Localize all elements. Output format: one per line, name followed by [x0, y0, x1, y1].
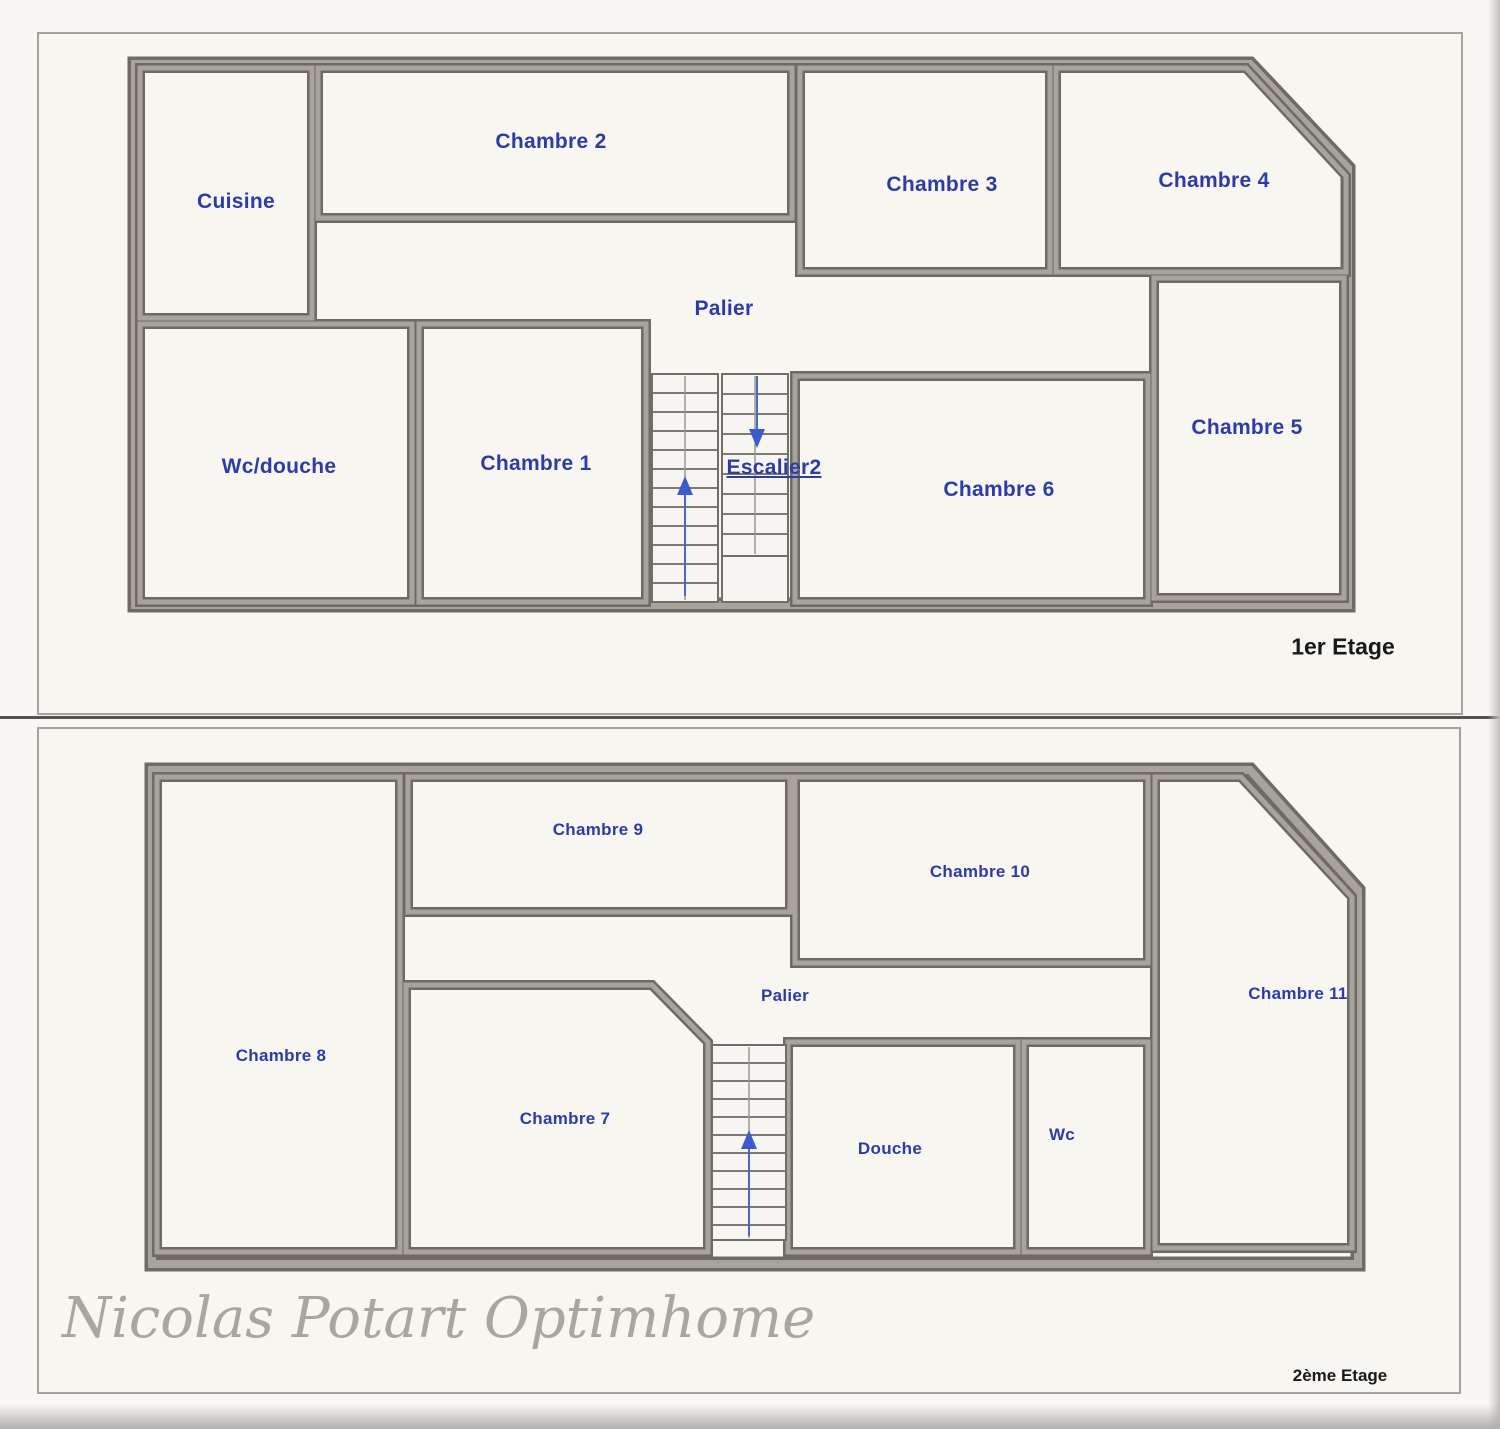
- room-label-chambre-11: Chambre 11: [1248, 984, 1347, 1004]
- scan-edge-right: [1488, 0, 1500, 1429]
- room-label-chambre-1: Chambre 1: [480, 452, 591, 476]
- room-label-chambre-2: Chambre 2: [495, 130, 606, 154]
- room-label-chambre-9: Chambre 9: [553, 820, 644, 840]
- scanned-floorplan-document: Cuisine Chambre 2 Chambre 3 Chambre 4 Pa…: [0, 0, 1500, 1429]
- room-label-douche: Douche: [858, 1139, 922, 1159]
- floor2-title: 2ème Etage: [1293, 1366, 1388, 1386]
- room-label-cuisine: Cuisine: [197, 190, 275, 214]
- room-label-wc-douche: Wc/douche: [222, 455, 337, 479]
- room-label-chambre-4: Chambre 4: [1158, 169, 1269, 193]
- floorplan-drawing: [0, 0, 1500, 1429]
- room-label-chambre-3: Chambre 3: [886, 173, 997, 197]
- room-label-palier-1: Palier: [694, 297, 753, 321]
- room-label-chambre-8: Chambre 8: [236, 1046, 327, 1066]
- floor2-stairs: [712, 1045, 786, 1240]
- room-label-palier-2: Palier: [761, 986, 809, 1006]
- watermark-text: Nicolas Potart Optimhome: [62, 1286, 815, 1351]
- scan-edge-bottom: [0, 1404, 1500, 1429]
- room-label-escalier2: Escalier2: [727, 456, 822, 480]
- room-label-chambre-6: Chambre 6: [943, 478, 1054, 502]
- room-label-wc: Wc: [1049, 1125, 1075, 1145]
- floor1-title: 1er Etage: [1291, 634, 1395, 661]
- room-label-chambre-7: Chambre 7: [520, 1109, 611, 1129]
- room-label-chambre-5: Chambre 5: [1191, 416, 1302, 440]
- room-label-chambre-10: Chambre 10: [930, 862, 1030, 882]
- floor1-stairs: [652, 374, 788, 602]
